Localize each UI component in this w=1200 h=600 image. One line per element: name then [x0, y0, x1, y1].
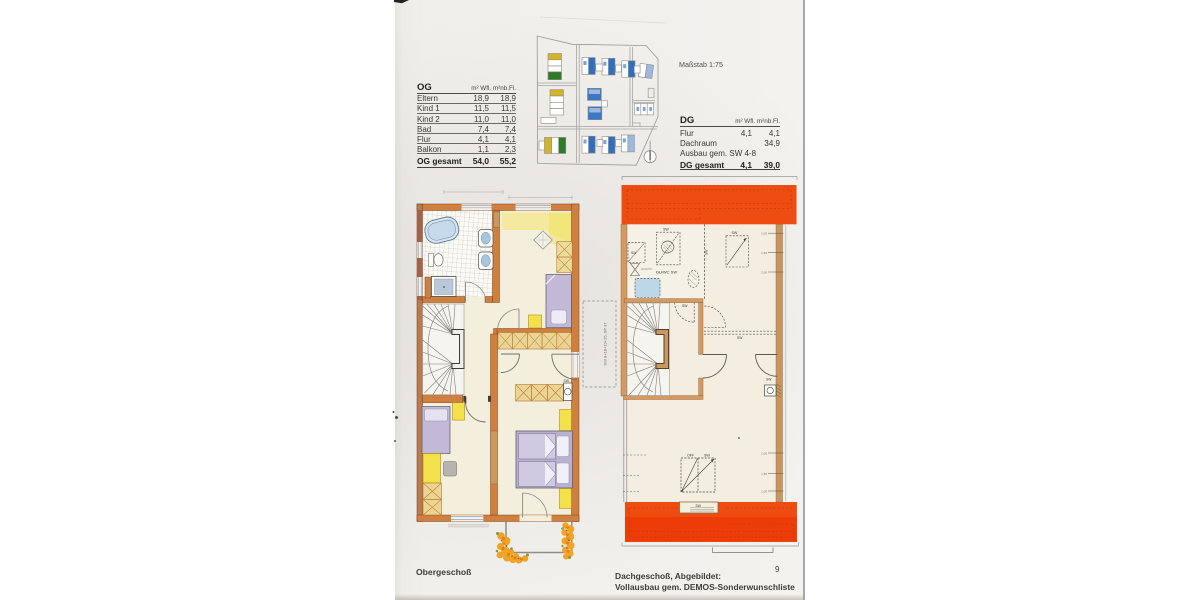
svg-text:1,00: 1,00 [761, 232, 767, 236]
svg-text:SW: SW [737, 336, 743, 340]
svg-text:OFF: OFF [687, 454, 695, 458]
svg-text:SW: SW [704, 454, 710, 458]
svg-text:SW: SW [696, 504, 702, 508]
svg-text:SW: SW [631, 251, 637, 255]
svg-text:1,50: 1,50 [761, 472, 767, 476]
svg-text:2,00: 2,00 [761, 271, 767, 275]
svg-text:SW: SW [766, 378, 772, 382]
svg-text:1,00: 1,00 [761, 490, 767, 494]
svg-text:2,00: 2,00 [761, 452, 767, 456]
svg-text:DU/WC SW: DU/WC SW [656, 270, 677, 275]
svg-text:SW: SW [663, 228, 669, 232]
svg-text:SW: SW [682, 304, 688, 308]
svg-text:SW: SW [705, 249, 709, 255]
svg-text:SW: SW [732, 231, 738, 235]
svg-text:1,50: 1,50 [761, 251, 767, 255]
svg-text:WASCHTI.: WASCHTI. [641, 268, 653, 271]
svg-text:SW: SW [564, 379, 570, 383]
svg-text:SW 8+18+19+25, SP 37: SW 8+18+19+25, SP 37 [603, 322, 608, 366]
